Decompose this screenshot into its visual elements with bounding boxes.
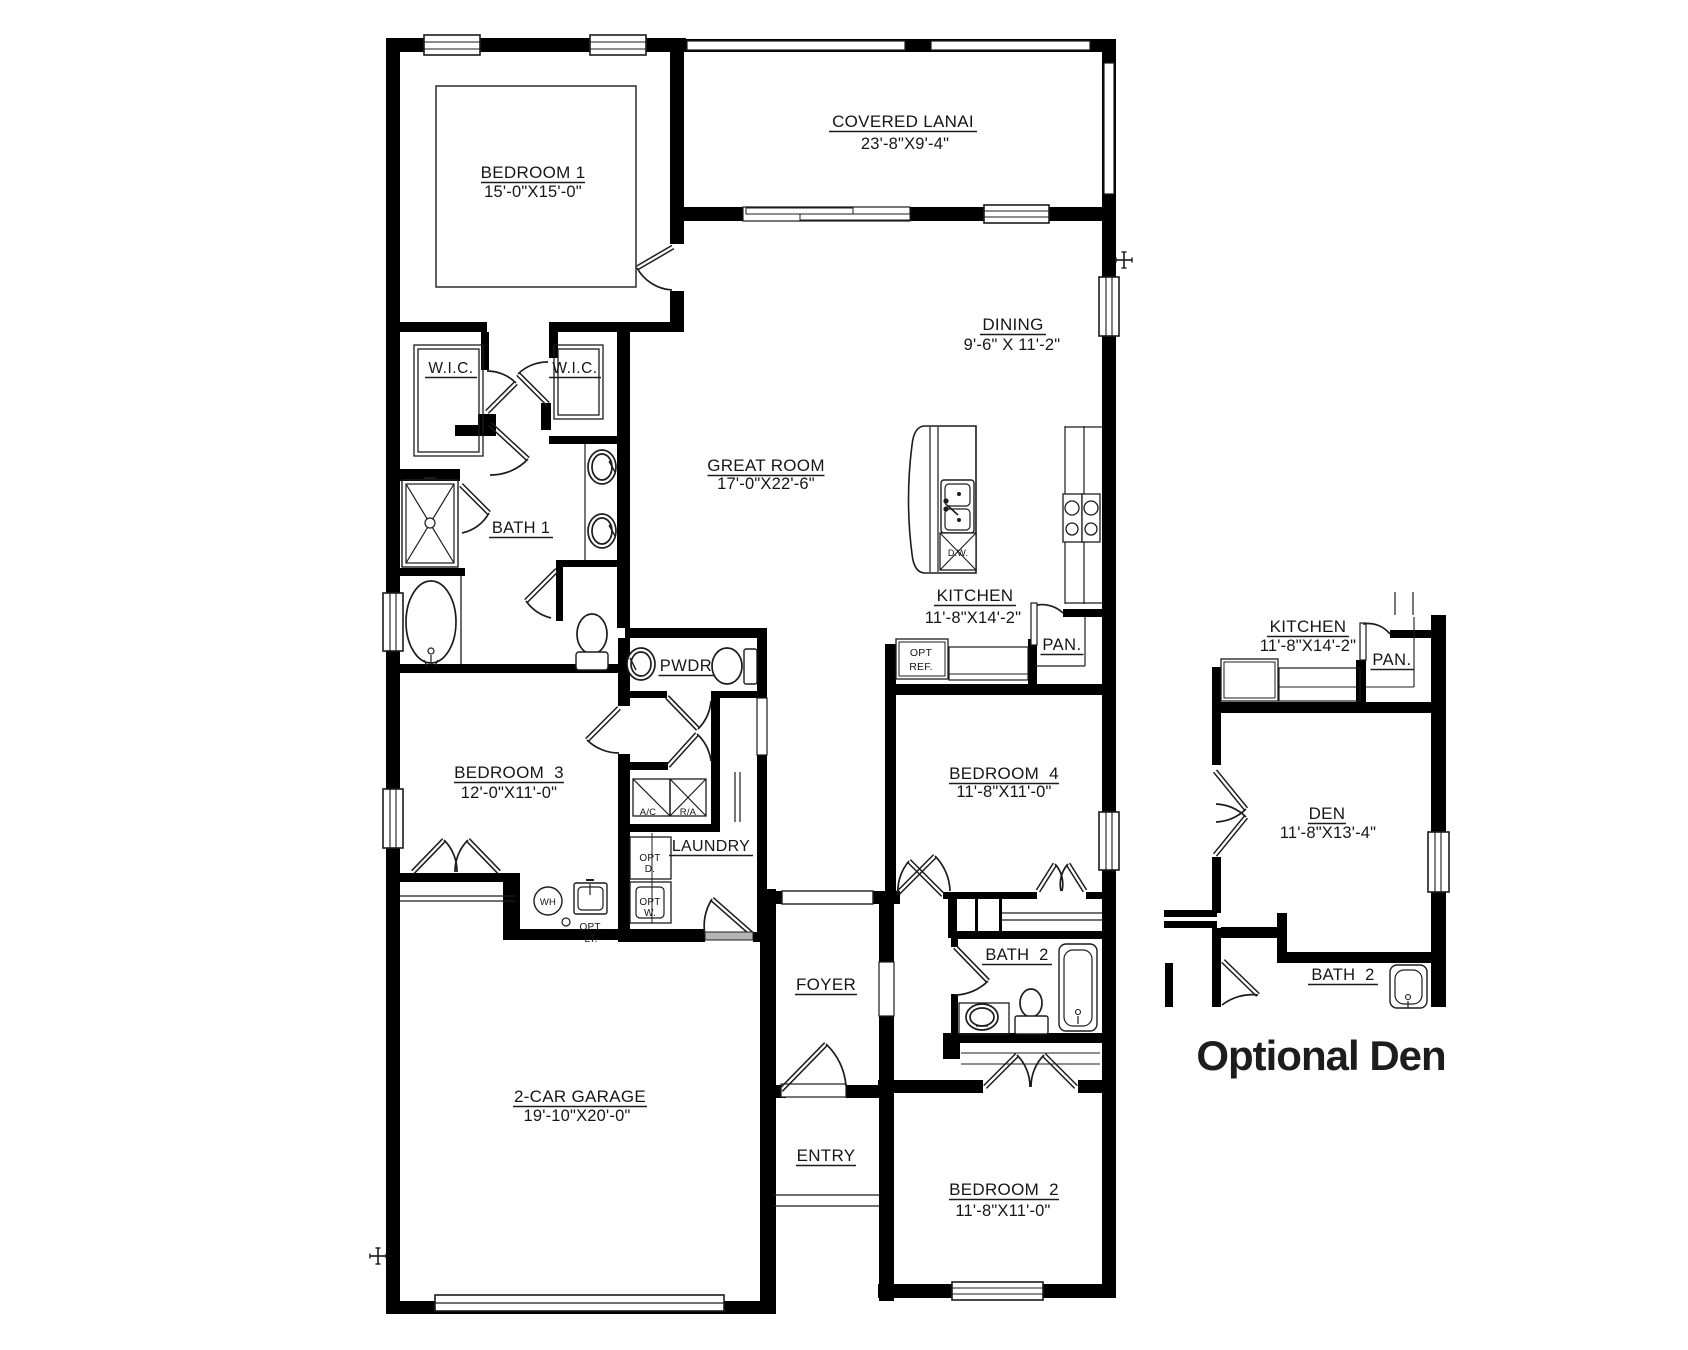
svg-text:23'-8"X9'-4": 23'-8"X9'-4" [861, 135, 949, 153]
svg-text:11'-8"X14'-2": 11'-8"X14'-2" [925, 609, 1021, 627]
svg-text:OPT.: OPT. [579, 922, 602, 933]
svg-text:15'-0"X15'-0": 15'-0"X15'-0" [484, 183, 582, 201]
svg-text:REF.: REF. [909, 661, 933, 673]
svg-text:BATH 1: BATH 1 [492, 519, 550, 537]
svg-text:PAN.: PAN. [1372, 651, 1411, 669]
svg-text:PWDR: PWDR [660, 657, 712, 675]
svg-text:12'-0"X11'-0": 12'-0"X11'-0" [461, 784, 557, 802]
svg-text:BEDROOM 4: BEDROOM 4 [949, 764, 1059, 783]
svg-text:DINING: DINING [982, 315, 1043, 334]
svg-text:LAUNDRY: LAUNDRY [672, 838, 750, 855]
svg-text:D.W.: D.W. [948, 548, 968, 558]
svg-text:OPT: OPT [639, 853, 660, 864]
svg-text:PAN.: PAN. [1042, 636, 1081, 654]
svg-text:19'-10"X20'-0": 19'-10"X20'-0" [523, 1107, 630, 1125]
svg-text:BEDROOM 3: BEDROOM 3 [454, 763, 564, 782]
svg-text:W.I.C.: W.I.C. [428, 360, 473, 377]
svg-text:KITCHEN: KITCHEN [937, 586, 1014, 605]
svg-text:9'-6" X 11'-2": 9'-6" X 11'-2" [964, 336, 1061, 354]
svg-text:KITCHEN: KITCHEN [1270, 617, 1347, 636]
svg-text:17'-0"X22'-6": 17'-0"X22'-6" [717, 475, 815, 493]
svg-text:OPT: OPT [639, 897, 660, 908]
svg-text:BEDROOM 1: BEDROOM 1 [481, 163, 586, 182]
svg-text:FOYER: FOYER [796, 975, 856, 994]
svg-text:2-CAR GARAGE: 2-CAR GARAGE [514, 1087, 646, 1106]
svg-text:WH: WH [540, 897, 556, 908]
svg-text:ENTRY: ENTRY [797, 1146, 856, 1165]
svg-text:COVERED LANAI: COVERED LANAI [832, 112, 974, 131]
svg-text:GREAT ROOM: GREAT ROOM [707, 456, 825, 475]
svg-text:W.: W. [644, 908, 656, 919]
svg-text:11'-8"X14'-2": 11'-8"X14'-2" [1260, 637, 1356, 655]
svg-text:DEN: DEN [1309, 804, 1346, 823]
svg-text:BATH 2: BATH 2 [985, 946, 1048, 964]
svg-text:Optional Den: Optional Den [1196, 1032, 1445, 1079]
svg-text:11'-8"X11'-0": 11'-8"X11'-0" [956, 783, 1051, 801]
svg-text:BEDROOM 2: BEDROOM 2 [949, 1180, 1059, 1199]
svg-text:BATH 2: BATH 2 [1311, 966, 1374, 984]
svg-text:LT.: LT. [584, 934, 597, 945]
svg-text:D.: D. [645, 864, 655, 875]
svg-text:11'-8"X11'-0": 11'-8"X11'-0" [955, 1202, 1050, 1220]
svg-text:R/A: R/A [680, 807, 697, 818]
svg-text:11'-8"X13'-4": 11'-8"X13'-4" [1280, 824, 1376, 842]
svg-text:W.I.C.: W.I.C. [552, 360, 597, 377]
svg-text:A/C: A/C [640, 807, 656, 818]
svg-text:OPT: OPT [910, 647, 933, 659]
